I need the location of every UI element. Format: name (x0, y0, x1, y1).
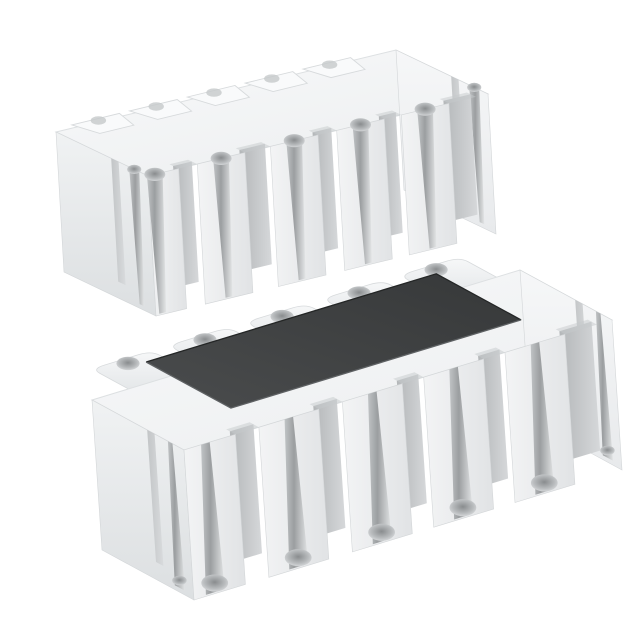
component-render-svg: white ceramic chip array, bottom (termin… (0, 0, 640, 640)
castellation-notch (127, 165, 141, 174)
castellation-notch (284, 134, 305, 147)
castellation-notch (415, 103, 436, 116)
castellation-notch (116, 357, 139, 370)
pad-notch (322, 60, 337, 68)
castellation-notch (285, 549, 312, 566)
pad-notch (91, 116, 106, 124)
pad-notch (149, 102, 164, 110)
product-render: white ceramic chip array, bottom (termin… (0, 0, 640, 640)
castellation-notch (144, 168, 165, 181)
castellation-notch (368, 524, 395, 541)
castellation-notch (600, 446, 615, 455)
page: { "meta": { "type": "product-render", "d… (0, 0, 640, 640)
castellation-notch (350, 118, 371, 131)
pad-notch (264, 74, 279, 82)
castellation-notch (467, 83, 481, 92)
castellation-notch (172, 576, 187, 585)
pad-notch (206, 88, 221, 96)
castellation-notch (201, 575, 228, 592)
castellation-notch (211, 152, 232, 165)
castellation-notch (531, 474, 558, 491)
castellation-notch (450, 499, 477, 516)
